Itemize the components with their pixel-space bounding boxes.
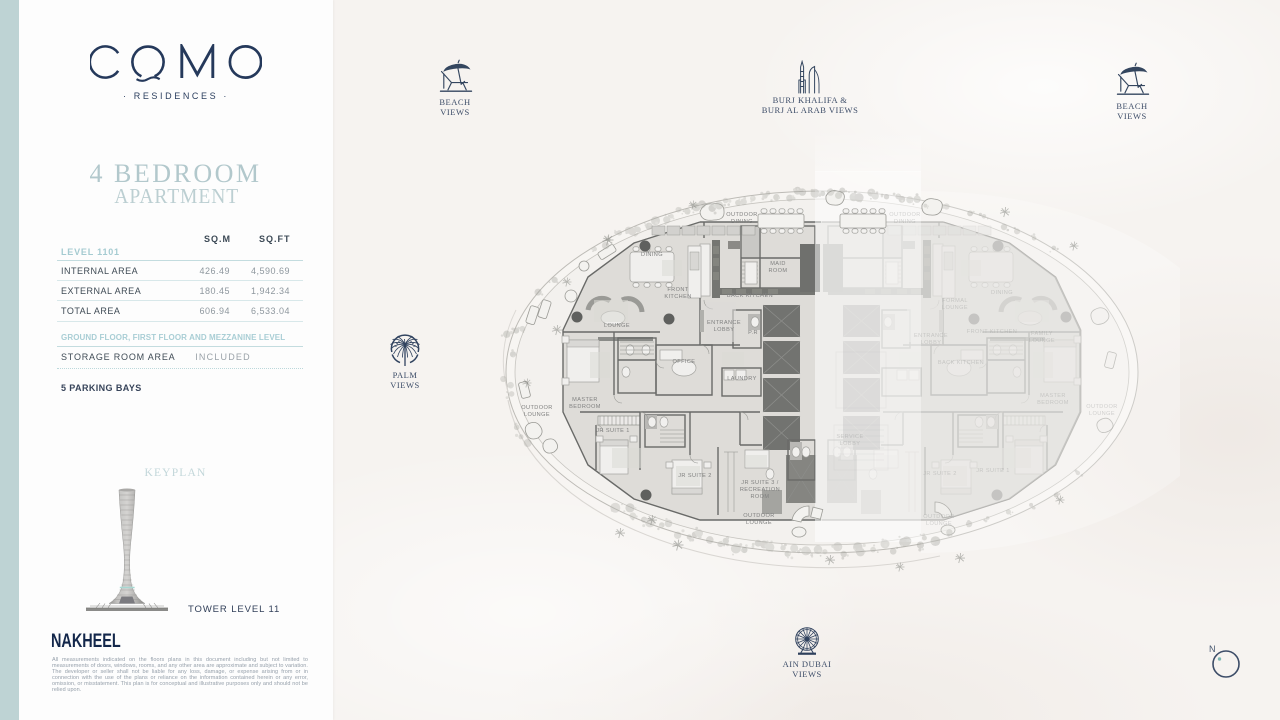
svg-text:BACK KITCHEN: BACK KITCHEN (727, 293, 773, 299)
svg-text:LOUNGE: LOUNGE (604, 323, 630, 329)
svg-text:OUTDOOR: OUTDOOR (726, 212, 757, 218)
svg-text:KITCHEN: KITCHEN (664, 294, 691, 300)
svg-text:OUTDOOR: OUTDOOR (521, 405, 552, 411)
svg-text:LOUNGE: LOUNGE (1029, 338, 1055, 344)
svg-text:OUTDOOR: OUTDOOR (889, 212, 920, 218)
svg-text:OUTDOOR: OUTDOOR (923, 514, 954, 520)
svg-text:DINING: DINING (641, 252, 663, 258)
svg-text:JR SUITE 3 /: JR SUITE 3 / (741, 480, 778, 486)
svg-text:LOBBY: LOBBY (714, 327, 735, 333)
svg-text:DINING: DINING (894, 219, 916, 225)
svg-text:MASTER: MASTER (572, 397, 598, 403)
svg-text:DINING: DINING (991, 290, 1013, 296)
svg-text:MAID: MAID (770, 261, 786, 267)
svg-text:ROOM: ROOM (750, 494, 769, 500)
svg-text:LOUNGE: LOUNGE (1089, 411, 1115, 417)
svg-text:SERVICE: SERVICE (836, 434, 863, 440)
svg-text:OUTDOOR: OUTDOOR (1086, 404, 1117, 410)
svg-text:ENTRANCE: ENTRANCE (707, 320, 741, 326)
svg-text:LAUNDRY: LAUNDRY (727, 376, 756, 382)
svg-text:OUTDOOR: OUTDOOR (743, 513, 774, 519)
svg-text:DINING: DINING (731, 219, 753, 225)
svg-text:FRONT KITCHEN: FRONT KITCHEN (967, 329, 1017, 335)
svg-text:LOUNGE: LOUNGE (746, 520, 772, 526)
svg-text:RECREATION: RECREATION (740, 487, 780, 493)
svg-text:· RESIDENCES ·: · RESIDENCES · (123, 91, 229, 101)
svg-text:ROOM: ROOM (768, 268, 787, 274)
svg-text:JR SUITE 1: JR SUITE 1 (596, 428, 630, 434)
svg-text:LOUNGE: LOUNGE (926, 521, 952, 527)
svg-text:BEDROOM: BEDROOM (569, 404, 601, 410)
svg-text:JR SUITE 2: JR SUITE 2 (678, 473, 712, 479)
svg-text:MASTER: MASTER (1040, 393, 1066, 399)
svg-text:LOUNGE: LOUNGE (524, 412, 550, 418)
svg-text:LOUNGE: LOUNGE (942, 305, 968, 311)
svg-text:BACK KITCHEN: BACK KITCHEN (938, 360, 984, 366)
svg-text:ENTRANCE: ENTRANCE (914, 333, 948, 339)
svg-text:LOBBY: LOBBY (840, 441, 861, 447)
svg-text:FAMILY: FAMILY (1031, 331, 1053, 337)
svg-text:BEDROOM: BEDROOM (1037, 400, 1069, 406)
svg-text:JR SUITE 1: JR SUITE 1 (976, 468, 1010, 474)
svg-text:FORMAL: FORMAL (942, 298, 968, 304)
svg-text:OFFICE: OFFICE (673, 359, 696, 365)
svg-text:LOBBY: LOBBY (921, 340, 942, 346)
svg-text:JR SUITE 2: JR SUITE 2 (923, 471, 957, 477)
svg-text:FRONT: FRONT (667, 287, 688, 293)
svg-text:P.R: P.R (748, 330, 758, 336)
